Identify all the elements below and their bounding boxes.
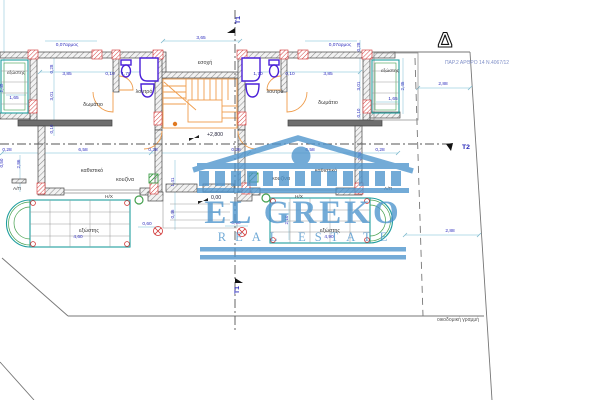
dim-setback-top: 2,88 — [438, 81, 448, 87]
dim-core-a: 1,41 — [170, 177, 175, 186]
dim-balcony-tr-depth: 2,45 — [400, 81, 405, 90]
watermark-name: EL GREKO — [204, 195, 401, 231]
dim-bedroom-left-width: 3,85 — [62, 71, 72, 77]
dim-balcony-tr-width: 1,65 — [388, 96, 398, 102]
dim-recess-width: 3,65 — [196, 35, 206, 41]
balcony-top-right — [372, 60, 399, 113]
section-label-t1-bottom: Τ1 — [234, 286, 241, 294]
shower-right — [242, 58, 260, 81]
watermark-tagline: REAL ESTATE — [218, 230, 396, 244]
room-label-bathroom-right: λουτρό — [267, 88, 284, 95]
watermark-logo-circle — [292, 147, 311, 166]
dim-gap-right: 0,10 — [285, 71, 295, 77]
room-label-bedroom-left: δωμάτιο — [83, 101, 103, 108]
dim-joint-left: 0,07αρμος — [56, 42, 79, 48]
room-label-kitchen-left: κουζίνα — [116, 177, 134, 183]
dim-m028-a: 0,28 — [2, 147, 12, 153]
section-label-t2: Τ2 — [462, 144, 470, 151]
floor-plan-drawing: Τ1 Τ1 Τ2 Δ ΠΑΡ.2 ΑΡΘΡΟ 14 Ν.4067/12 οικο… — [0, 0, 600, 400]
t1-arrow-bottom — [235, 278, 243, 283]
floor-plan-canvas: Τ1 Τ1 Τ2 Δ ΠΑΡ.2 ΑΡΘΡΟ 14 Ν.4067/12 οικο… — [0, 0, 600, 400]
watermark-bars — [200, 247, 406, 260]
section-label-t1-top: Τ1 — [235, 16, 242, 24]
bathtub-left — [140, 58, 158, 81]
toilet-tank-right — [269, 60, 279, 65]
sink-right — [246, 84, 259, 97]
dim-balcony-tl-depth: 2,45 — [0, 83, 4, 92]
dim-living-left-depth: 2,86 — [16, 159, 21, 168]
regulation-note: ΠΑΡ.2 ΑΡΘΡΟ 14 Ν.4067/12 — [445, 60, 509, 66]
room-label-bedroom-right: δωμάτιο — [318, 99, 338, 106]
dim-m028-c: 0,28 — [231, 147, 241, 153]
dim-ledge-right: 0,10 — [356, 108, 361, 117]
building-line-label: οικοδομική γραμμή — [437, 316, 479, 323]
dim-west-offset: 0,50 — [0, 158, 4, 167]
dim-bath-left-width: 1,70 — [121, 71, 131, 77]
dim-core-c: 0,60 — [142, 221, 152, 227]
room-label-balcony-bottom-left: εξώστης — [79, 228, 99, 234]
t1-arrow-top — [227, 28, 235, 33]
dim-joint-right: 0,07αρμος — [329, 42, 352, 48]
dim-core-b: 0,46 — [170, 209, 175, 218]
dim-ledge-left: 0,10 — [49, 124, 54, 133]
watermark: EL GREKO REAL ESTATE — [193, 138, 413, 260]
staircase — [163, 79, 237, 128]
dim-v028-right: 0,28 — [356, 42, 361, 51]
dim-balcony-tl-width: 1,65 — [9, 95, 19, 101]
north-delta-symbol: Δ — [437, 29, 452, 52]
dim-bedroom-left-depth: 3,01 — [49, 91, 54, 100]
room-label-hx-left: Η/Χ — [105, 194, 114, 200]
balcony-bottom-left — [6, 200, 130, 247]
dim-setback-bottom: 2,88 — [445, 228, 455, 234]
toilet-right — [270, 65, 279, 77]
dim-m028-d: 0,28 — [375, 147, 385, 153]
dim-gap-left: 0,10 — [105, 71, 115, 77]
room-label-recess: εσοχή — [198, 59, 212, 66]
door-swings — [93, 76, 307, 149]
dim-bedroom-right-width: 3,85 — [323, 71, 333, 77]
dim-v028-left: 0,28 — [49, 64, 54, 73]
dim-bath-right-width: 1,70 — [253, 71, 263, 77]
level-upper: +2,800 — [207, 132, 223, 138]
room-label-balcony-top-right: εξώστης — [381, 67, 400, 74]
room-label-living-left: καθιστικό — [81, 167, 103, 174]
room-label-balcony-top-left: εξώστης — [7, 69, 26, 76]
balcony-top-left — [1, 60, 28, 113]
dim-living-left-width: 6,58 — [78, 147, 88, 153]
dim-balcony-bl-width: 4,60 — [73, 234, 83, 240]
toilet-tank-left — [121, 60, 131, 65]
room-label-ap-left: Α/Π — [13, 186, 22, 192]
dim-m028-b: 0,28 — [148, 147, 158, 153]
dim-bedroom-right-depth: 3,01 — [356, 81, 361, 90]
t2-arrow — [446, 143, 453, 151]
room-label-bathroom-left: λουτρό — [136, 88, 153, 95]
section-arrows — [227, 28, 453, 283]
